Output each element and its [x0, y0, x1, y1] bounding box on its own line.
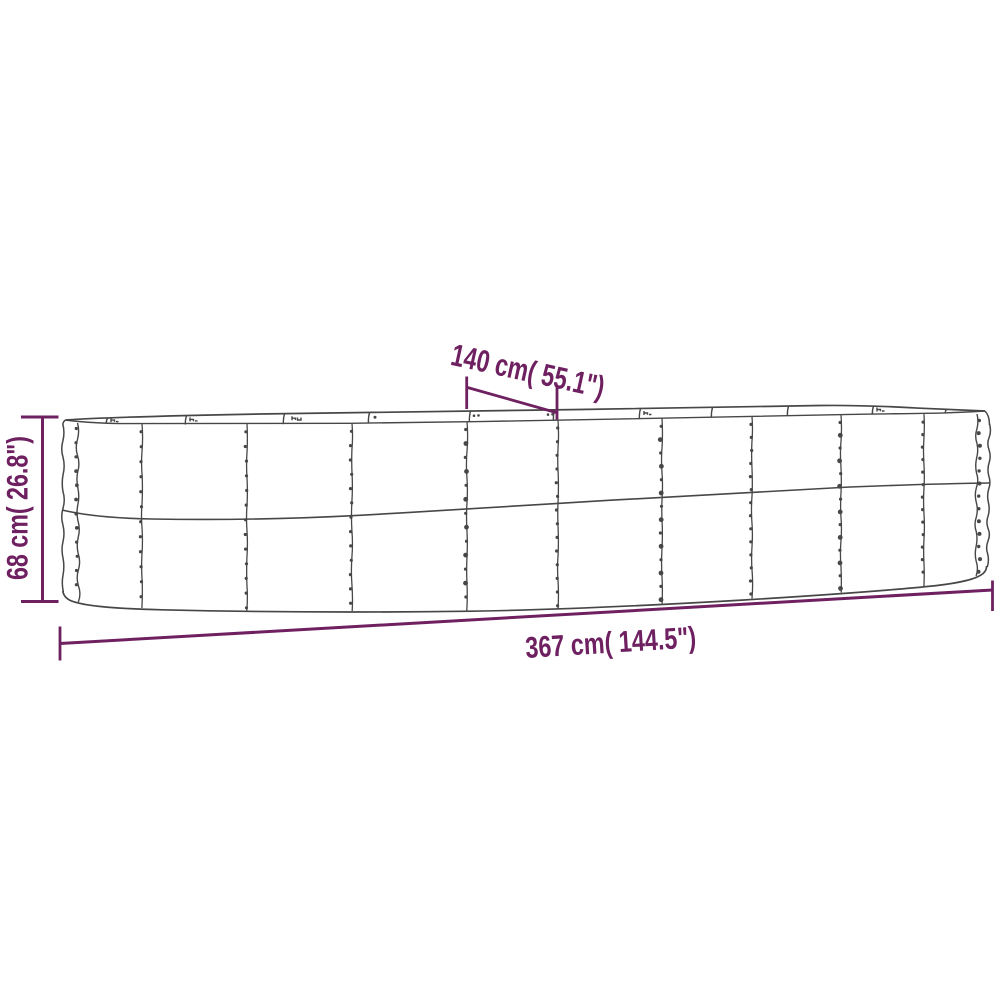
- svg-text:68 cm( 26.8"): 68 cm( 26.8"): [2, 436, 35, 580]
- svg-text:140 cm( 55.1"): 140 cm( 55.1"): [448, 337, 608, 405]
- svg-text:367 cm( 144.5"): 367 cm( 144.5"): [524, 621, 697, 665]
